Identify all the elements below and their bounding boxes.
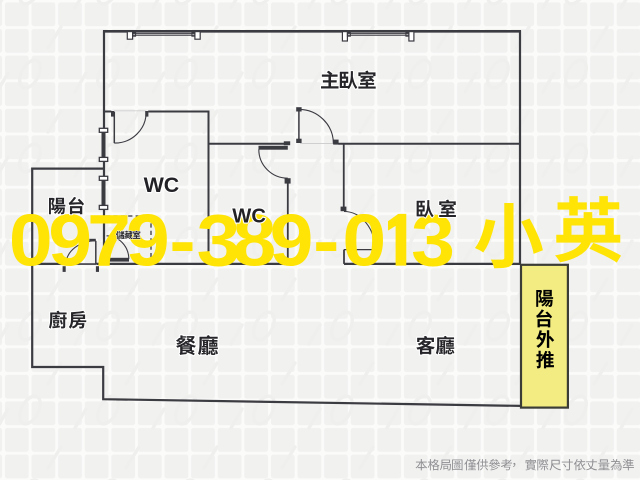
svg-text:WC: WC	[232, 206, 266, 228]
svg-text:WC: WC	[144, 173, 180, 197]
